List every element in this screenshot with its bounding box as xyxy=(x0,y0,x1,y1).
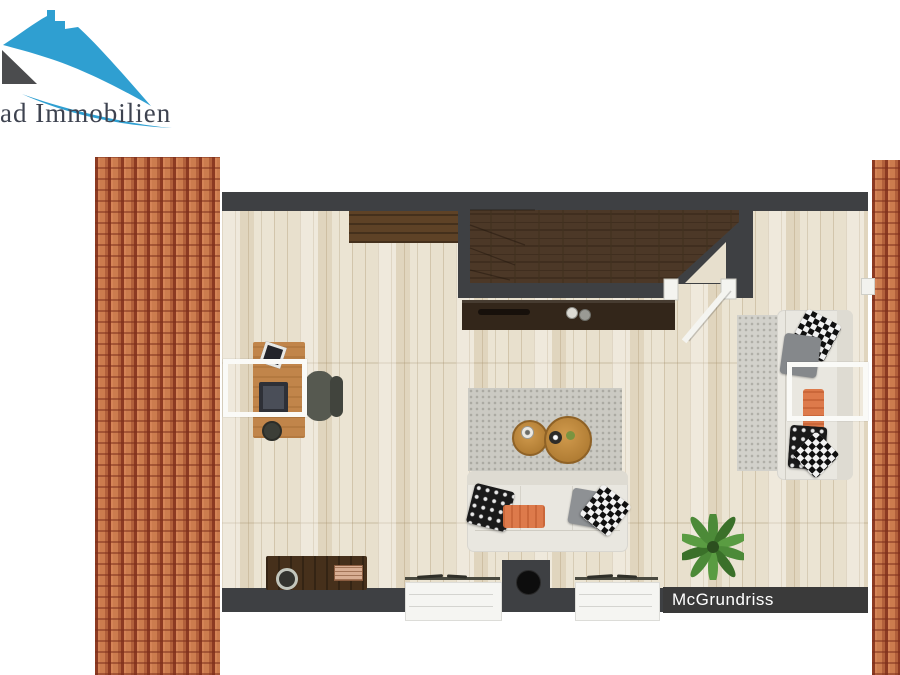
windowsill-decor xyxy=(417,574,443,579)
cup-2 xyxy=(580,310,591,321)
cup-1 xyxy=(567,308,578,319)
sideboard-book xyxy=(334,565,363,581)
door-jamb-left xyxy=(664,279,678,300)
window-left-frame-line xyxy=(405,577,500,580)
sideboard-bowl xyxy=(276,568,298,590)
desk-mug xyxy=(262,421,282,441)
agency-logo-text: rad Immobilien xyxy=(0,98,171,129)
table-fruit xyxy=(566,431,575,440)
orange-throw-center xyxy=(503,505,545,528)
desk-chair-back xyxy=(330,376,343,417)
windowsill-decor xyxy=(587,574,613,579)
table-cup-dark xyxy=(549,431,562,444)
windowsill-decor xyxy=(447,574,467,578)
wall-shelf xyxy=(349,211,460,243)
center-sofa-backrest xyxy=(467,471,628,485)
table-cup-white xyxy=(521,426,534,439)
right-rug xyxy=(737,315,777,471)
skylight-outline-left xyxy=(223,359,307,417)
skylight-outline-right xyxy=(787,362,868,421)
window-right xyxy=(575,582,660,621)
window-right-frame-line xyxy=(575,577,658,580)
roof-tiles-right xyxy=(872,160,900,675)
watermark-bar: McGrundriss xyxy=(663,587,868,613)
floorplan-canvas: rad Immobilien xyxy=(0,0,900,675)
window-left xyxy=(405,582,502,621)
chimney-flue-icon xyxy=(516,570,541,595)
windowsill-decor xyxy=(617,574,637,578)
potted-plant xyxy=(682,514,744,580)
watermark-label: McGrundriss xyxy=(672,590,774,609)
wall-end-jamb xyxy=(861,278,875,295)
door-leaf xyxy=(686,289,728,339)
remote-control xyxy=(478,309,530,315)
stairwell-enclosure xyxy=(455,190,755,350)
roof-tiles-left xyxy=(95,157,220,675)
